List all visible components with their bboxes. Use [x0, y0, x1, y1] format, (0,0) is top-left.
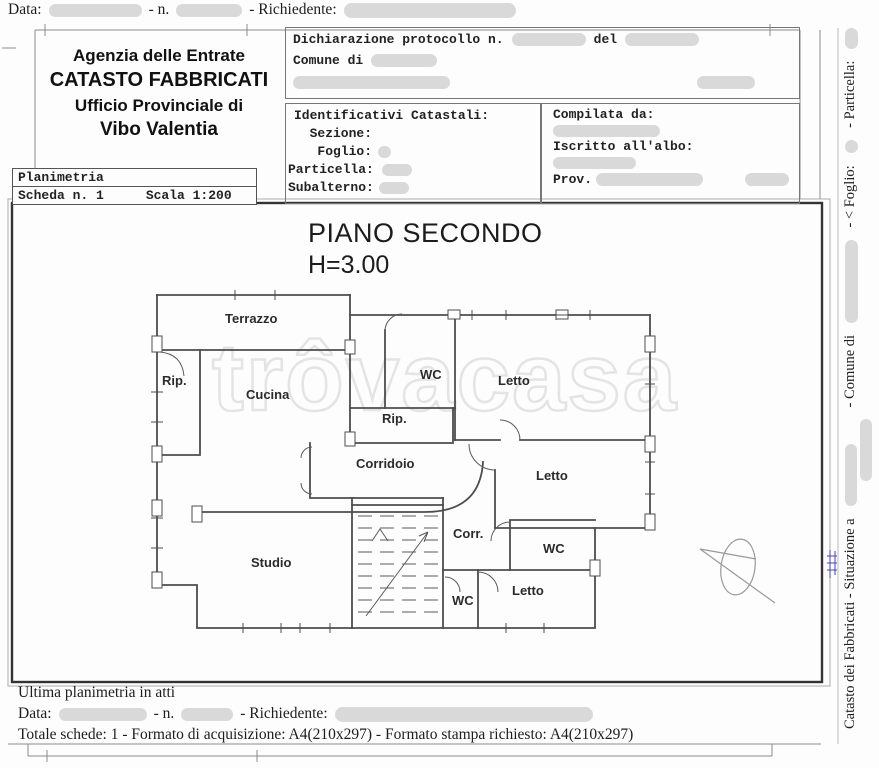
redacted-value — [176, 4, 242, 17]
side-strip-particella: - Particella: — [842, 61, 859, 128]
foglio-label: Foglio: — [294, 143, 372, 161]
compilata-box: Compilata da: Iscritto all'albo: Prov. — [540, 103, 800, 204]
declaration-box: Dichiarazione protocollo n. del Comune d… — [285, 27, 800, 99]
illegible-blue-annotation — [827, 550, 837, 578]
agency-header: Agenzia delle Entrate CATASTO FABBRICATI… — [35, 44, 283, 143]
plan-title: PIANO SECONDO — [308, 218, 543, 249]
redacted-value — [596, 173, 703, 186]
particella-label: Particella: — [288, 161, 374, 179]
totale-schede-line: Totale schede: 1 - Formato di acquisizio… — [18, 726, 633, 744]
redacted-value — [512, 33, 586, 46]
room-label-rip-left: Rip. — [162, 373, 187, 388]
redacted-value — [335, 707, 593, 722]
richiedente-label: - Richiedente: — [249, 1, 336, 19]
planimetria-title: Planimetria — [13, 169, 256, 187]
agency-name: Agenzia delle Entrate — [35, 44, 283, 67]
room-label-wc-right: WC — [543, 541, 565, 556]
scheda-label: Scheda n. 1 — [18, 188, 104, 203]
side-strip: Catasto dei Fabbricati - Situazione a - … — [842, 28, 878, 743]
room-label-rip-mid: Rip. — [382, 411, 407, 426]
number-label: - n. — [149, 1, 170, 19]
stairs — [358, 516, 438, 616]
redacted-value — [344, 3, 516, 18]
redacted-value — [181, 708, 233, 721]
compilata-title: Compilata da: — [553, 107, 799, 123]
iscritto-label: Iscritto all'albo: — [553, 138, 799, 155]
redacted-value — [845, 444, 857, 506]
side-strip-foglio: - < Foglio: — [842, 165, 859, 227]
province-name: Vibo Valentia — [35, 117, 283, 143]
redacted-value — [745, 173, 789, 186]
room-label-terrazzo: Terrazzo — [225, 311, 278, 326]
cadastral-floorplan-document: trôvacasa — [0, 0, 879, 768]
room-label-corridoio: Corridoio — [356, 456, 415, 471]
planimetria-box: Planimetria Scheda n. 1 Scala 1:200 — [12, 168, 257, 205]
comune-label: Comune di — [293, 53, 363, 68]
redacted-value — [845, 140, 858, 154]
redacted-value — [378, 146, 391, 158]
data-label: Data: — [18, 705, 52, 723]
catasto-title: CATASTO FABBRICATI — [35, 67, 283, 94]
north-arrow — [700, 537, 775, 603]
identificativi-title: Identificativi Catastali: — [294, 107, 541, 125]
richiedente-label: - Richiedente: — [240, 705, 327, 723]
redacted-value — [845, 240, 858, 323]
redacted-value — [697, 76, 755, 89]
side-strip-catasto: Catasto dei Fabbricati - Situazione a — [842, 518, 859, 729]
room-label-letto-bottom: Letto — [512, 583, 544, 598]
ultima-planimetria-note: Ultima planimetria in atti — [18, 684, 175, 702]
room-label-studio: Studio — [251, 555, 291, 570]
room-label-letto-topright: Letto — [498, 373, 530, 388]
redacted-value — [379, 182, 409, 194]
room-label-corr: Corr. — [453, 526, 483, 541]
office-line: Ufficio Provinciale di — [35, 94, 283, 117]
redacted-value-stack — [845, 419, 872, 506]
redacted-value — [382, 164, 412, 176]
side-strip-comune: - Comune di — [842, 335, 859, 408]
sezione-label: Sezione: — [294, 125, 541, 143]
number-label: - n. — [154, 705, 175, 723]
redacted-value — [845, 28, 858, 49]
protocol-label: Dichiarazione protocollo n. — [293, 32, 504, 47]
room-label-letto-right: Letto — [536, 468, 568, 483]
redacted-value — [553, 125, 660, 137]
identificativi-box: Identificativi Catastali: Sezione: Fogli… — [285, 103, 542, 204]
watermark-text: trôvacasa — [212, 324, 678, 431]
redacted-value — [293, 76, 450, 89]
redacted-value — [49, 4, 142, 17]
room-label-wc-top: WC — [420, 367, 442, 382]
redacted-value — [553, 157, 636, 169]
redacted-value — [625, 33, 699, 46]
room-label-cucina: Cucina — [246, 387, 289, 402]
redacted-value — [860, 419, 872, 481]
redacted-value — [371, 54, 437, 67]
plan-height-label: H=3.00 — [308, 251, 389, 280]
top-data-line: Data: - n. - Richiedente: — [8, 1, 523, 19]
del-label: del — [594, 32, 617, 47]
redacted-value — [59, 708, 147, 721]
room-label-wc-bottom: WC — [452, 593, 474, 608]
data-label: Data: — [8, 1, 42, 19]
subalterno-label: Subalterno: — [288, 179, 374, 197]
scala-label: Scala 1:200 — [146, 188, 232, 203]
prov-label: Prov. — [553, 171, 592, 188]
footer-data-line: Data: - n. - Richiedente: — [18, 705, 600, 723]
